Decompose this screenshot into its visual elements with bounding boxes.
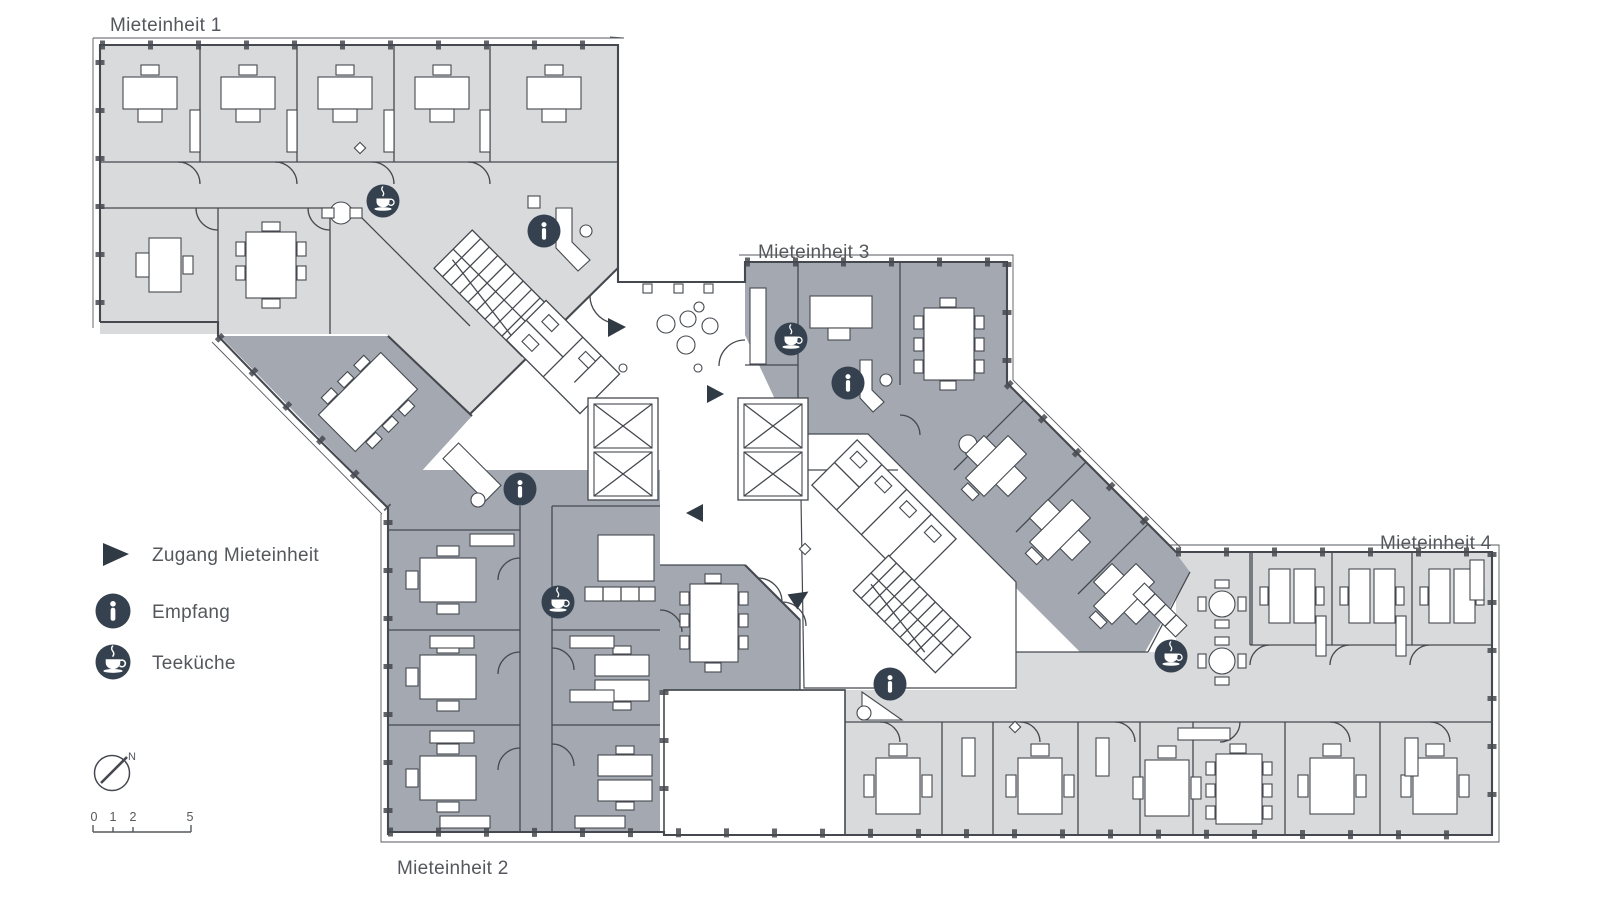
north-compass-icon: N bbox=[95, 751, 137, 791]
scale-bar bbox=[93, 825, 191, 832]
teacup-icon bbox=[367, 185, 400, 218]
scale-bar-labels: 0 1 2 5 bbox=[91, 810, 194, 824]
legend-teekueche-label: Teeküche bbox=[152, 653, 236, 674]
unit-2-label: Mieteinheit 2 bbox=[397, 858, 509, 879]
neutral-room bbox=[664, 690, 845, 835]
info-icon bbox=[528, 215, 561, 248]
info-icon bbox=[96, 594, 131, 629]
legend-empfang-label: Empfang bbox=[152, 602, 230, 623]
teacup-icon bbox=[542, 586, 575, 619]
scale-tick-5: 5 bbox=[187, 810, 194, 824]
entrance-arrow-icon bbox=[103, 543, 129, 566]
kitchen-counter-u2 bbox=[585, 587, 655, 601]
info-icon bbox=[832, 367, 865, 400]
teacup-icon bbox=[96, 645, 131, 680]
info-icon bbox=[504, 473, 537, 506]
meeting-table-u3 bbox=[914, 298, 984, 390]
unit-3-label: Mieteinheit 3 bbox=[758, 242, 870, 263]
scale-tick-1: 1 bbox=[110, 810, 117, 824]
teacup-icon bbox=[775, 323, 808, 356]
floor-plan-page: Mieteinheit 1 Mieteinheit 2 Mieteinheit … bbox=[0, 0, 1600, 916]
floor-plan: Mieteinheit 1 Mieteinheit 2 Mieteinheit … bbox=[0, 0, 1600, 916]
scale-tick-0: 0 bbox=[91, 810, 98, 824]
meeting-table-u2b bbox=[680, 574, 748, 672]
teacup-icon bbox=[1155, 640, 1188, 673]
lobby-circles bbox=[619, 302, 718, 372]
elevator-bank-2 bbox=[738, 398, 808, 500]
compass-north-label: N bbox=[128, 751, 136, 763]
legend: Zugang Mieteinheit Empfang Teeküche N 0 … bbox=[91, 543, 320, 832]
meeting-table-u1 bbox=[236, 222, 306, 308]
legend-zugang-label: Zugang Mieteinheit bbox=[152, 545, 319, 566]
unit-4-label: Mieteinheit 4 bbox=[1380, 533, 1492, 554]
scale-tick-2: 2 bbox=[130, 810, 137, 824]
entrance-arrow-icon bbox=[686, 504, 703, 522]
elevator-bank-1 bbox=[588, 398, 658, 500]
meeting-table-u4 bbox=[1206, 744, 1272, 824]
info-icon bbox=[874, 668, 907, 701]
entrance-arrow-icon bbox=[608, 318, 626, 337]
unit-1-label: Mieteinheit 1 bbox=[110, 15, 222, 36]
entrance-arrow-icon bbox=[707, 385, 724, 403]
